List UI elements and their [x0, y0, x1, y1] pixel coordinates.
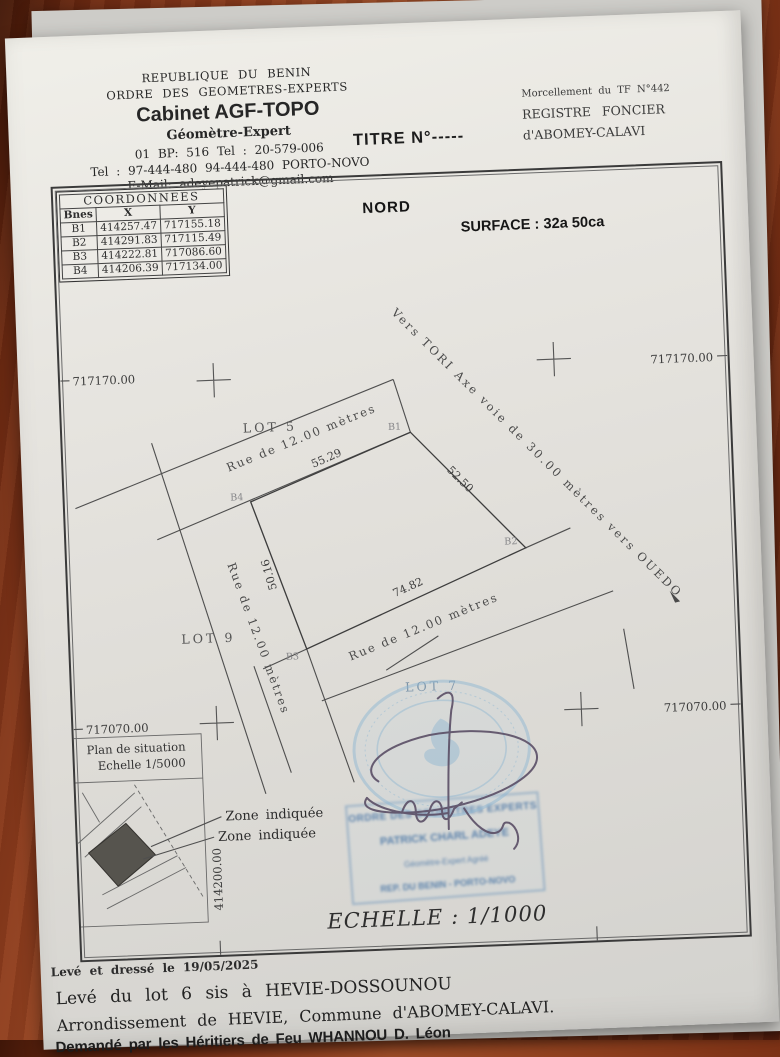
round-stamp: [351, 678, 531, 820]
y-north-left: 717170.00: [72, 372, 135, 388]
surface-label: SURFACE : 32a 50ca: [460, 214, 605, 236]
survey-plan-document: REPUBLIQUE DU BENIN ORDRE DES GEOMETRES-…: [5, 10, 779, 1050]
y-north-right: 717170.00: [650, 350, 713, 366]
corner-b4: B4: [230, 492, 244, 503]
col-bornes: Bnes: [60, 208, 97, 223]
north-label: NORD: [362, 198, 411, 217]
titre-number: TITRE N°-----: [353, 127, 465, 150]
street-lines: [71, 371, 638, 801]
rue-top-label: Rue de 12.00 mètres: [224, 401, 378, 475]
situation-inset: Plan de situation Echelle 1/5000: [70, 734, 208, 927]
y-south-right: 717070.00: [664, 699, 727, 715]
rue-bottom-label: Rue de 12.00 mètres: [347, 590, 501, 664]
axe-voie-label: Vers TORI Axe voie de 30.00 mètres vers …: [388, 305, 685, 601]
lot9-label: LOT 9: [181, 630, 236, 647]
dimension-labels: 55.29 52.50 74.82 50.16: [254, 441, 480, 605]
zone-label-1: Zone indiquée: [225, 806, 324, 825]
x-west-label: 414200.00: [210, 848, 226, 911]
morcellement-line: Morcellement du TF N°442: [521, 81, 731, 100]
dim-b1-b2: 52.50: [444, 464, 476, 496]
corner-b3: B3: [286, 651, 300, 662]
zone-indicated-labels: Zone indiquée Zone indiquée: [142, 806, 325, 859]
plan-frame: ORDRE DES GEOMETRES EXPERTS PATRICK CHAR…: [51, 161, 752, 962]
corner-b2: B2: [504, 536, 518, 547]
lot5-label: LOT 5: [242, 419, 297, 436]
dim-b3-b4: 50.16: [259, 558, 280, 592]
main-scale-label: ECHELLE : 1/1000: [326, 900, 548, 933]
y-south-left: 717070.00: [86, 721, 149, 737]
land-registry-block: Morcellement du TF N°442 REGISTRE FONCIE…: [521, 81, 733, 143]
inset-indicated-zone: [88, 822, 157, 887]
inset-title: Plan de situation: [86, 739, 186, 757]
coordinates-table: COORDONNEES Bnes X Y B1 414257.47 717155…: [56, 185, 230, 282]
plan-drawing: NORD SURFACE : 32a 50ca 717170.00 717170…: [53, 163, 750, 960]
zone-label-2: Zone indiquée: [218, 826, 317, 845]
parcel-lot6-outline: [248, 428, 529, 651]
corner-b1: B1: [388, 422, 402, 433]
registre-place-line: d'ABOMEY-CALAVI: [523, 120, 733, 143]
inset-scale: Echelle 1/5000: [98, 756, 186, 773]
dim-b4-b1: 55.29: [309, 446, 343, 470]
registre-foncier-line: REGISTRE FONCIER: [522, 99, 732, 122]
